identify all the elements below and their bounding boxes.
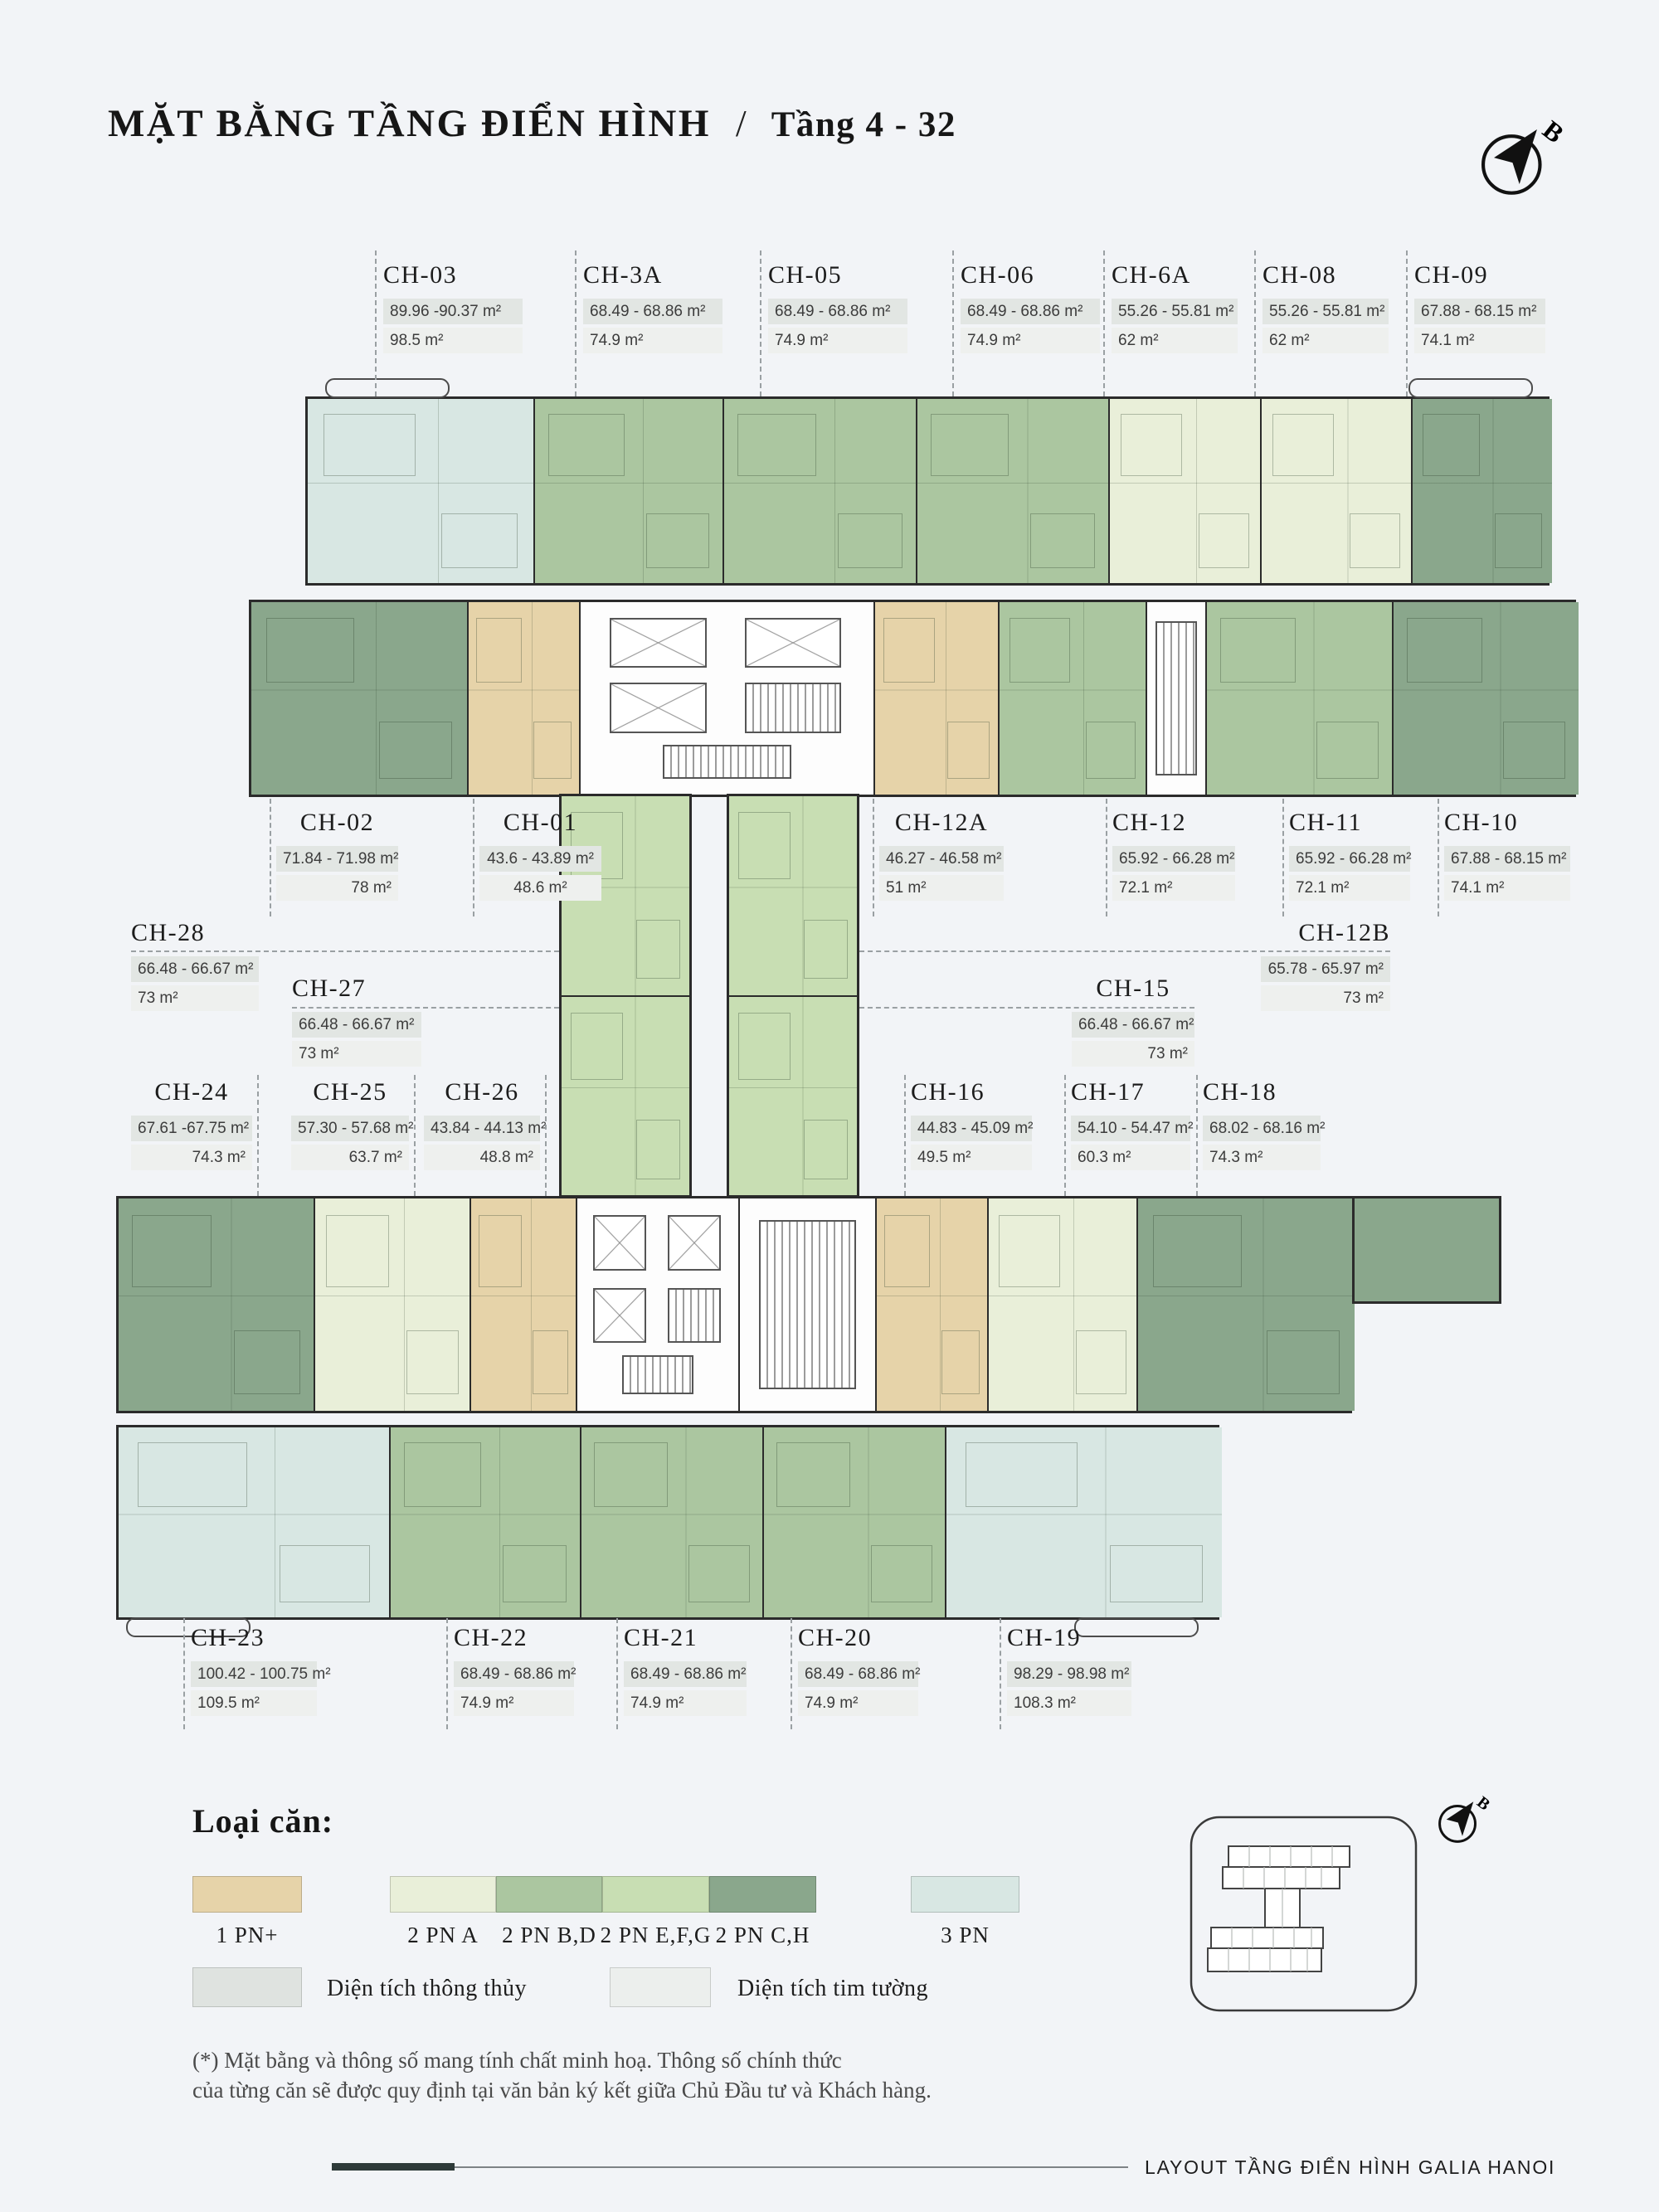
- leader-dash: [873, 799, 874, 916]
- plan-wing-1: [305, 396, 1550, 586]
- lift-icon: [610, 618, 706, 668]
- plan-unit-CH-11: [1205, 602, 1392, 795]
- lift-icon: [745, 618, 841, 668]
- unit-name: CH-09: [1414, 261, 1545, 289]
- unit-gross-area: 74.9 m²: [961, 328, 1100, 353]
- unit-label-CH-25: CH-2557.30 - 57.68 m²63.7 m²: [291, 1078, 409, 1170]
- plan-unit-CH-23: [119, 1427, 389, 1617]
- legend-heading: Loại căn:: [192, 1801, 333, 1840]
- leader-dash: [375, 250, 377, 396]
- plan-unit-CH-21: [580, 1427, 762, 1617]
- unit-gross-area: 74.3 m²: [131, 1145, 252, 1170]
- unit-gross-area: 74.9 m²: [583, 328, 722, 353]
- plan-unit-CH-03: [308, 399, 533, 583]
- unit-area-range: 71.84 - 71.98 m²: [276, 846, 398, 872]
- leader-dash: [859, 950, 1390, 952]
- leader-dash: [545, 1075, 547, 1196]
- unit-label-CH-02: CH-0271.84 - 71.98 m²78 m²: [276, 809, 398, 901]
- unit-gross-area: 74.1 m²: [1444, 875, 1570, 901]
- legend-swatch-tim-tuong: [610, 1967, 711, 2007]
- unit-name: CH-10: [1444, 809, 1570, 836]
- leader-dash: [616, 1618, 618, 1729]
- unit-area-range: 89.96 -90.37 m²: [383, 299, 523, 324]
- unit-area-range: 66.48 - 66.67 m²: [292, 1012, 421, 1038]
- plan-unit-CH-12A: [873, 602, 998, 795]
- unit-label-CH-03: CH-0389.96 -90.37 m²98.5 m²: [383, 261, 523, 353]
- unit-label-CH-15: CH-1566.48 - 66.67 m²73 m²: [1072, 975, 1194, 1067]
- unit-area-range: 98.29 - 98.98 m²: [1007, 1661, 1131, 1687]
- balcony-outline: [325, 378, 450, 398]
- footnote: (*) Mặt bằng và thông số mang tính chất …: [192, 2045, 932, 2105]
- floor-plan-page: MẶT BẰNG TẦNG ĐIỂN HÌNH / Tầng 4 - 32 B …: [0, 0, 1659, 2212]
- unit-area-range: 100.42 - 100.75 m²: [191, 1661, 317, 1687]
- unit-gross-area: 48.6 m²: [479, 875, 601, 901]
- unit-name: CH-26: [424, 1078, 540, 1106]
- unit-gross-area: 51 m²: [879, 875, 1004, 901]
- unit-label-CH-12B: CH-12B65.78 - 65.97 m²73 m²: [1261, 919, 1390, 1011]
- stairs-icon: [622, 1355, 693, 1393]
- legend-swatch-2-pn-b-d: [496, 1876, 602, 1913]
- unit-area-range: 68.49 - 68.86 m²: [583, 299, 722, 324]
- leader-dash: [1000, 1618, 1001, 1729]
- lift-icon: [610, 683, 706, 732]
- page-title: MẶT BẰNG TẦNG ĐIỂN HÌNH: [108, 101, 711, 146]
- plan-unit-CH-18: [1136, 1198, 1355, 1411]
- leader-dash: [1103, 250, 1105, 396]
- plan-unit-CH-06: [916, 399, 1108, 583]
- unit-label-CH-12A: CH-12A46.27 - 46.58 m²51 m²: [879, 809, 1004, 901]
- unit-label-CH-06: CH-0668.49 - 68.86 m²74.9 m²: [961, 261, 1100, 353]
- plan-unit-CH-09: [1411, 399, 1552, 583]
- unit-area-range: 65.92 - 66.28 m²: [1112, 846, 1235, 872]
- leader-dash: [257, 1075, 259, 1196]
- unit-gross-area: 73 m²: [131, 985, 259, 1011]
- stairs-icon: [668, 1288, 721, 1344]
- unit-name: CH-21: [624, 1624, 747, 1651]
- unit-area-range: 46.27 - 46.58 m²: [879, 846, 1004, 872]
- compass-minimap-icon: B: [1429, 1788, 1491, 1850]
- unit-gross-area: 73 m²: [1072, 1041, 1194, 1067]
- unit-area-range: 68.49 - 68.86 m²: [798, 1661, 918, 1687]
- unit-name: CH-19: [1007, 1624, 1131, 1651]
- unit-label-CH-20: CH-2068.49 - 68.86 m²74.9 m²: [798, 1624, 918, 1716]
- unit-gross-area: 63.7 m²: [291, 1145, 409, 1170]
- unit-name: CH-22: [454, 1624, 574, 1651]
- plan-unit-CH-01: [467, 602, 579, 795]
- unit-gross-area: 74.9 m²: [624, 1690, 747, 1716]
- legend-swatch-3-pn: [911, 1876, 1019, 1913]
- unit-name: CH-12B: [1261, 919, 1390, 946]
- unit-label-CH-27: CH-2766.48 - 66.67 m²73 m²: [292, 975, 421, 1067]
- leader-dash: [952, 250, 954, 396]
- unit-gross-area: 48.8 m²: [424, 1145, 540, 1170]
- leader-dash: [760, 250, 761, 396]
- plan-stair-core: [1146, 602, 1205, 795]
- unit-area-range: 68.02 - 68.16 m²: [1203, 1116, 1321, 1141]
- unit-area-range: 65.92 - 66.28 m²: [1289, 846, 1410, 872]
- leader-dash: [1282, 799, 1284, 916]
- legend-type-label: 1 PN+: [176, 1923, 319, 1948]
- unit-area-range: 55.26 - 55.81 m²: [1112, 299, 1238, 324]
- unit-name: CH-17: [1071, 1078, 1190, 1106]
- footer-rule-line: [455, 2166, 1128, 2168]
- unit-label-CH-16: CH-1644.83 - 45.09 m²49.5 m²: [911, 1078, 1032, 1170]
- unit-area-range: 43.84 - 44.13 m²: [424, 1116, 540, 1141]
- unit-label-CH-05: CH-0568.49 - 68.86 m²74.9 m²: [768, 261, 907, 353]
- unit-area-range: 57.30 - 57.68 m²: [291, 1116, 409, 1141]
- unit-label-CH-28: CH-2866.48 - 66.67 m²73 m²: [131, 919, 259, 1011]
- unit-name: CH-01: [479, 809, 601, 836]
- stairs-icon: [663, 745, 791, 780]
- unit-area-range: 67.88 - 68.15 m²: [1444, 846, 1570, 872]
- page-subtitle: Tầng 4 - 32: [771, 105, 956, 145]
- unit-label-CH-11: CH-1165.92 - 66.28 m²72.1 m²: [1289, 809, 1410, 901]
- unit-area-range: 66.48 - 66.67 m²: [131, 956, 259, 982]
- legend-swatch-thong-thuy: [192, 1967, 302, 2007]
- footnote-line-2: của từng căn sẽ được quy định tại văn bả…: [192, 2075, 932, 2105]
- leader-dash: [791, 1618, 792, 1729]
- leader-dash: [1254, 250, 1256, 396]
- unit-area-range: 65.78 - 65.97 m²: [1261, 956, 1390, 982]
- plan-unit-CH-22: [389, 1427, 580, 1617]
- svg-text:B: B: [1537, 115, 1564, 149]
- unit-gross-area: 98.5 m²: [383, 328, 523, 353]
- unit-name: CH-6A: [1112, 261, 1238, 289]
- leader-dash: [859, 1007, 1194, 1009]
- unit-label-CH-3A: CH-3A68.49 - 68.86 m²74.9 m²: [583, 261, 722, 353]
- unit-label-CH-18: CH-1868.02 - 68.16 m²74.3 m²: [1203, 1078, 1321, 1170]
- unit-label-CH-22: CH-2268.49 - 68.86 m²74.9 m²: [454, 1624, 574, 1716]
- unit-gross-area: 60.3 m²: [1071, 1145, 1190, 1170]
- unit-area-range: 67.61 -67.75 m²: [131, 1116, 252, 1141]
- plan-unit-CH-25: [314, 1198, 469, 1411]
- leader-dash: [292, 1007, 559, 1009]
- unit-area-range: 68.49 - 68.86 m²: [624, 1661, 747, 1687]
- unit-name: CH-15: [1072, 975, 1194, 1002]
- plan-unit-CH-6A: [1108, 399, 1260, 583]
- plan-unit-CH-10: [1392, 602, 1579, 795]
- leader-dash: [1106, 799, 1107, 916]
- footer-rule-dark: [332, 2163, 455, 2171]
- leader-dash: [1064, 1075, 1066, 1196]
- unit-label-CH-08: CH-0855.26 - 55.81 m²62 m²: [1262, 261, 1389, 353]
- unit-label-CH-6A: CH-6A55.26 - 55.81 m²62 m²: [1112, 261, 1238, 353]
- unit-name: CH-27: [292, 975, 421, 1002]
- unit-area-range: 67.88 - 68.15 m²: [1414, 299, 1545, 324]
- unit-label-CH-19: CH-1998.29 - 98.98 m²108.3 m²: [1007, 1624, 1131, 1716]
- plan-wing-2: [249, 600, 1576, 797]
- balcony-outline: [1408, 378, 1533, 398]
- unit-gross-area: 74.9 m²: [768, 328, 907, 353]
- leader-dash: [1196, 1075, 1198, 1196]
- unit-gross-area: 74.3 m²: [1203, 1145, 1321, 1170]
- plan-unit-CH-12: [998, 602, 1146, 795]
- unit-gross-area: 62 m²: [1262, 328, 1389, 353]
- unit-name: CH-12: [1112, 809, 1235, 836]
- unit-name: CH-12A: [879, 809, 1004, 836]
- plan-unit-CH-05: [722, 399, 916, 583]
- leader-dash: [904, 1075, 906, 1196]
- plan-unit-CH-18-annex: [1352, 1196, 1501, 1304]
- legend-swatch-2-pn-e-f-g: [602, 1876, 709, 1913]
- lift-icon: [668, 1215, 721, 1271]
- unit-gross-area: 72.1 m²: [1112, 875, 1235, 901]
- legend-swatch-1-pn-: [192, 1876, 302, 1913]
- unit-label-CH-09: CH-0967.88 - 68.15 m²74.1 m²: [1414, 261, 1545, 353]
- unit-gross-area: 49.5 m²: [911, 1145, 1032, 1170]
- legend-type-label: 2 PN C,H: [693, 1923, 833, 1948]
- unit-label-CH-12: CH-1265.92 - 66.28 m²72.1 m²: [1112, 809, 1235, 901]
- legend-label-thong-thuy: Diện tích thông thủy: [327, 1976, 527, 2002]
- leader-dash: [1406, 250, 1408, 396]
- unit-name: CH-23: [191, 1624, 317, 1651]
- plan-unit-CH-12B: [729, 796, 857, 995]
- legend-type-label: 3 PN: [894, 1923, 1036, 1948]
- leader-dash: [183, 1618, 185, 1729]
- svg-text:B: B: [1473, 1793, 1491, 1815]
- unit-gross-area: 62 m²: [1112, 328, 1238, 353]
- unit-area-range: 54.10 - 54.47 m²: [1071, 1116, 1190, 1141]
- unit-gross-area: 74.1 m²: [1414, 328, 1545, 353]
- unit-gross-area: 108.3 m²: [1007, 1690, 1131, 1716]
- unit-area-range: 66.48 - 66.67 m²: [1072, 1012, 1194, 1038]
- plan-connector-2: [727, 794, 859, 1198]
- unit-gross-area: 78 m²: [276, 875, 398, 901]
- leader-dash: [270, 799, 271, 916]
- unit-name: CH-24: [131, 1078, 252, 1106]
- unit-gross-area: 73 m²: [292, 1041, 421, 1067]
- unit-name: CH-11: [1289, 809, 1410, 836]
- unit-name: CH-28: [131, 919, 259, 946]
- lift-icon: [593, 1288, 646, 1344]
- unit-label-CH-17: CH-1754.10 - 54.47 m²60.3 m²: [1071, 1078, 1190, 1170]
- unit-name: CH-3A: [583, 261, 722, 289]
- legend-label-tim-tuong: Diện tích tim tường: [737, 1976, 928, 2002]
- plan-unit-CH-19: [945, 1427, 1222, 1617]
- unit-label-CH-21: CH-2168.49 - 68.86 m²74.9 m²: [624, 1624, 747, 1716]
- plan-unit-CH-24: [119, 1198, 314, 1411]
- plan-unit-CH-08: [1260, 399, 1411, 583]
- plan-unit-CH-20: [762, 1427, 945, 1617]
- leader-dash: [1438, 799, 1439, 916]
- footer-text: LAYOUT TẦNG ĐIỂN HÌNH GALIA HANOI: [1145, 2156, 1555, 2179]
- unit-gross-area: 74.9 m²: [798, 1690, 918, 1716]
- stairs-icon: [759, 1220, 856, 1390]
- plan-unit-CH-16: [875, 1198, 987, 1411]
- plan-unit-CH-27: [562, 995, 689, 1196]
- title-separator: /: [736, 101, 747, 145]
- plan-core: [579, 602, 873, 795]
- unit-name: CH-20: [798, 1624, 918, 1651]
- unit-gross-area: 72.1 m²: [1289, 875, 1410, 901]
- legend-swatch-2-pn-c-h: [709, 1876, 816, 1913]
- plan-unit-CH-02: [251, 602, 467, 795]
- keyplan-minimap: [1189, 1815, 1418, 2013]
- plan-unit-CH-15: [729, 995, 857, 1196]
- plan-stair-core: [738, 1198, 875, 1411]
- unit-area-range: 43.6 - 43.89 m²: [479, 846, 601, 872]
- unit-area-range: 44.83 - 45.09 m²: [911, 1116, 1032, 1141]
- unit-gross-area: 109.5 m²: [191, 1690, 317, 1716]
- lift-icon: [593, 1215, 646, 1271]
- unit-name: CH-25: [291, 1078, 409, 1106]
- footnote-line-1: (*) Mặt bằng và thông số mang tính chất …: [192, 2045, 932, 2075]
- stairs-icon: [1155, 621, 1197, 775]
- plan-unit-CH-3A: [533, 399, 722, 583]
- leader-dash: [446, 1618, 448, 1729]
- unit-name: CH-16: [911, 1078, 1032, 1106]
- plan-unit-CH-17: [987, 1198, 1136, 1411]
- plan-unit-CH-26: [469, 1198, 576, 1411]
- unit-label-CH-10: CH-1067.88 - 68.15 m²74.1 m²: [1444, 809, 1570, 901]
- unit-label-CH-23: CH-23100.42 - 100.75 m²109.5 m²: [191, 1624, 317, 1716]
- leader-dash: [131, 950, 559, 952]
- unit-gross-area: 73 m²: [1261, 985, 1390, 1011]
- leader-dash: [575, 250, 577, 396]
- unit-area-range: 68.49 - 68.86 m²: [454, 1661, 574, 1687]
- page-header: MẶT BẰNG TẦNG ĐIỂN HÌNH / Tầng 4 - 32: [108, 101, 956, 146]
- unit-name: CH-02: [276, 809, 398, 836]
- unit-area-range: 55.26 - 55.81 m²: [1262, 299, 1389, 324]
- unit-name: CH-06: [961, 261, 1100, 289]
- plan-wing-3: [116, 1196, 1352, 1413]
- unit-area-range: 68.49 - 68.86 m²: [768, 299, 907, 324]
- plan-wing-4: [116, 1425, 1219, 1620]
- legend-swatch-2-pn-a: [390, 1876, 496, 1913]
- stairs-icon: [745, 683, 841, 732]
- unit-label-CH-24: CH-2467.61 -67.75 m²74.3 m²: [131, 1078, 252, 1170]
- plan-core: [576, 1198, 738, 1411]
- unit-label-CH-01: CH-0143.6 - 43.89 m²48.6 m²: [479, 809, 601, 901]
- unit-name: CH-18: [1203, 1078, 1321, 1106]
- unit-gross-area: 74.9 m²: [454, 1690, 574, 1716]
- compass-north-icon: B: [1467, 108, 1564, 206]
- unit-name: CH-05: [768, 261, 907, 289]
- leader-dash: [414, 1075, 416, 1196]
- unit-name: CH-08: [1262, 261, 1389, 289]
- unit-area-range: 68.49 - 68.86 m²: [961, 299, 1100, 324]
- leader-dash: [473, 799, 474, 916]
- unit-name: CH-03: [383, 261, 523, 289]
- unit-label-CH-26: CH-2643.84 - 44.13 m²48.8 m²: [424, 1078, 540, 1170]
